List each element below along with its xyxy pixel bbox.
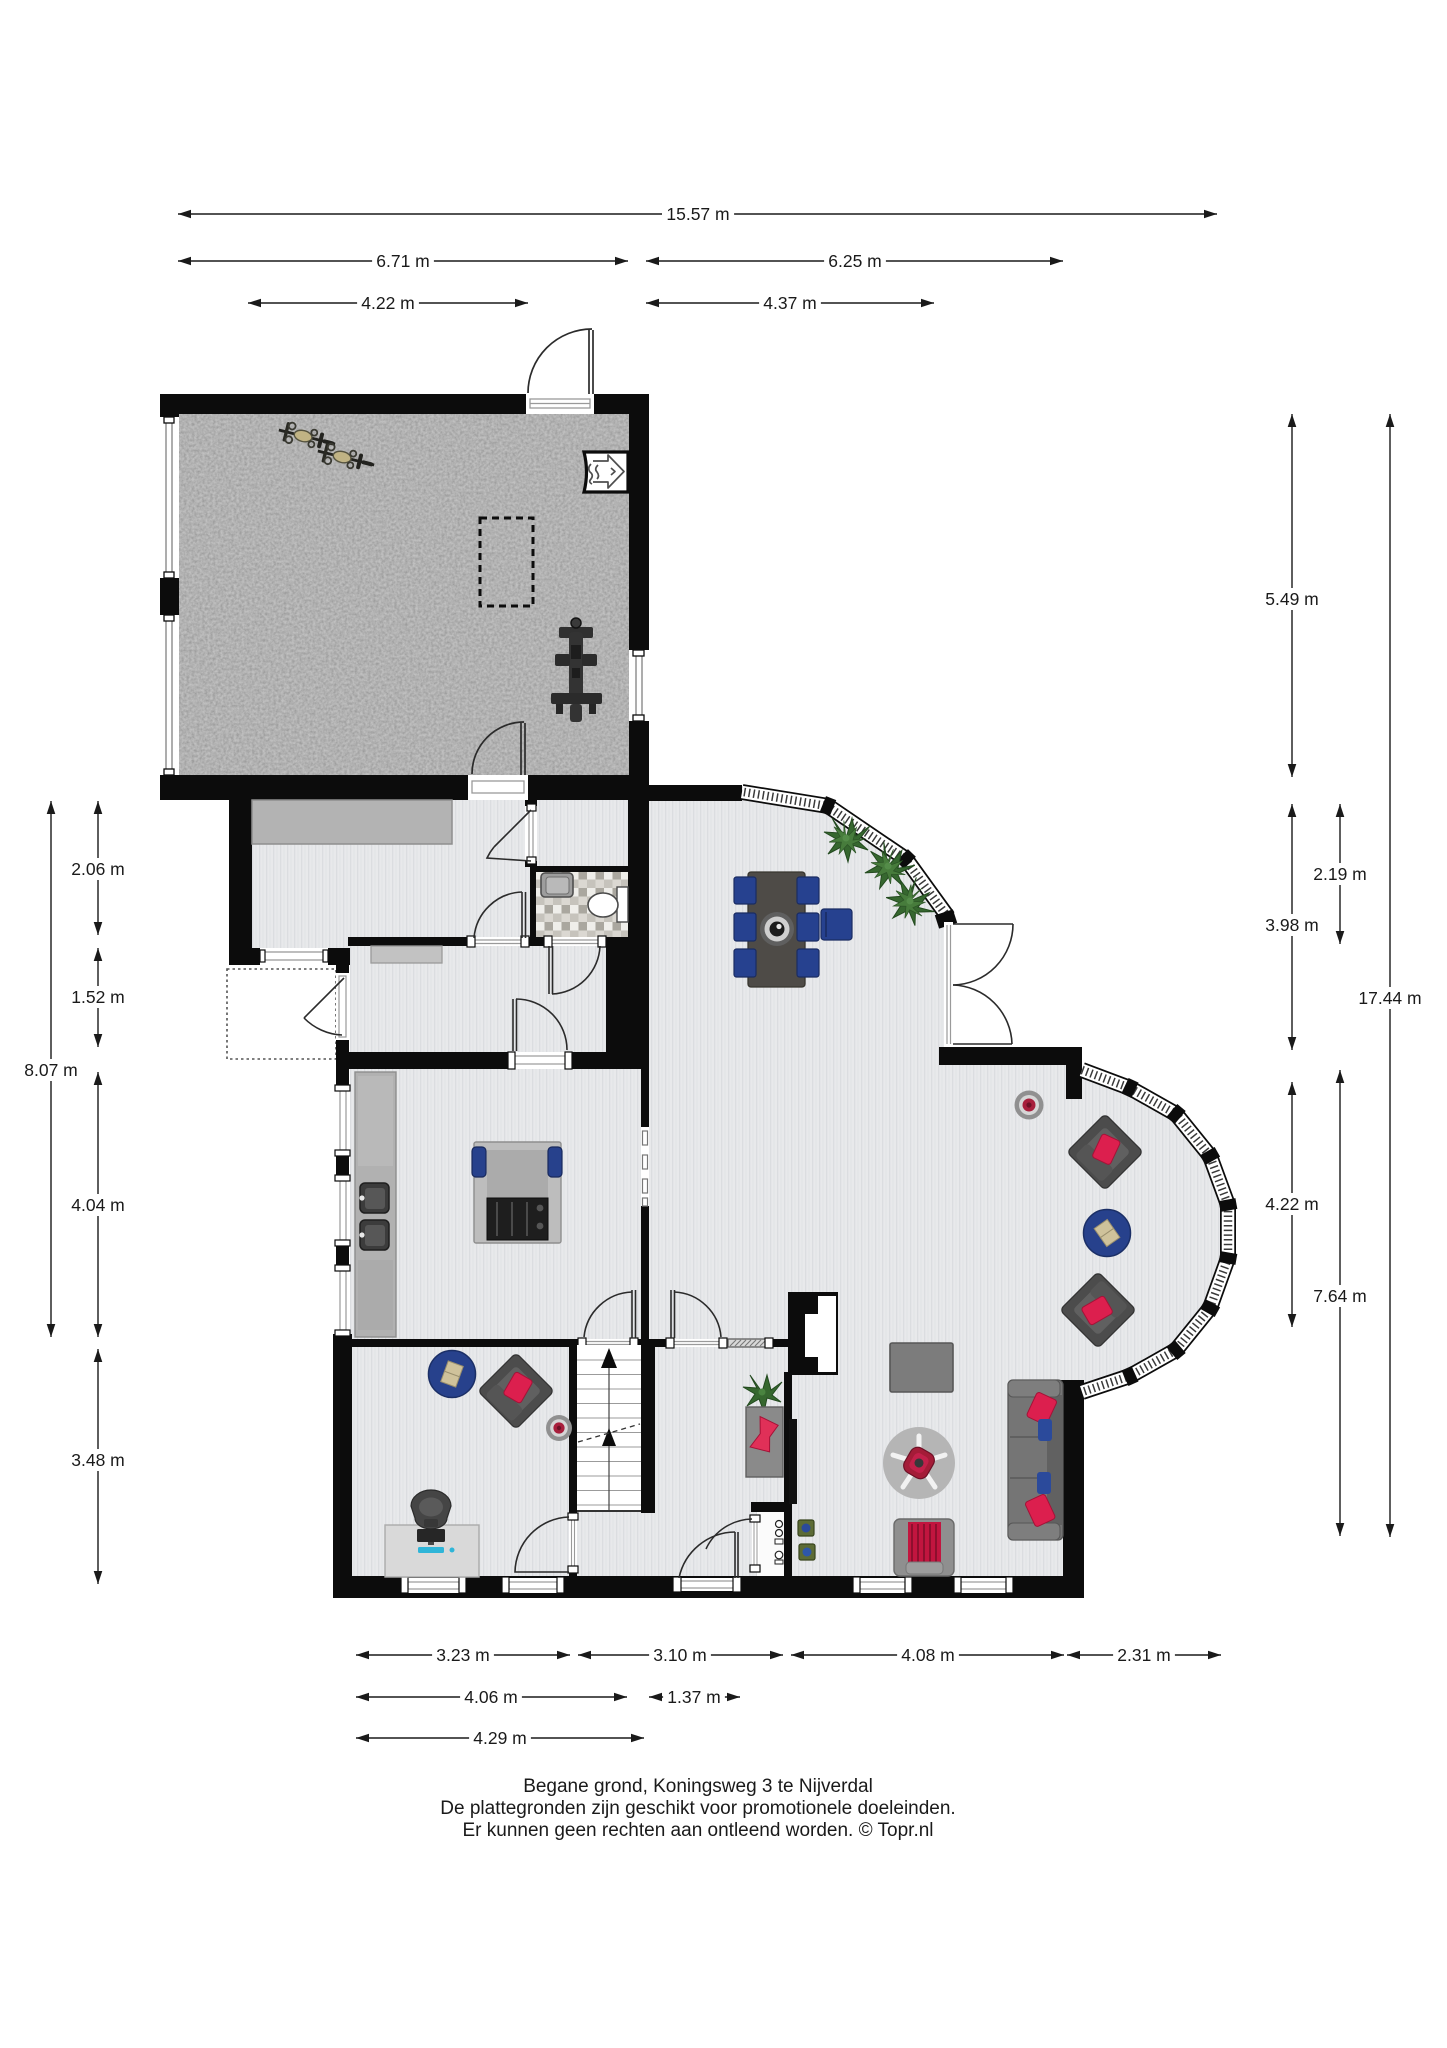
- svg-text:4.08 m: 4.08 m: [901, 1645, 955, 1665]
- svg-text:3.98 m: 3.98 m: [1265, 915, 1319, 935]
- svg-text:5.49 m: 5.49 m: [1265, 589, 1319, 609]
- svg-text:4.22 m: 4.22 m: [1265, 1194, 1319, 1214]
- svg-text:3.23 m: 3.23 m: [436, 1645, 490, 1665]
- svg-text:4.04 m: 4.04 m: [71, 1195, 125, 1215]
- svg-text:3.48 m: 3.48 m: [71, 1450, 125, 1470]
- svg-text:1.37 m: 1.37 m: [667, 1687, 721, 1707]
- svg-text:2.31 m: 2.31 m: [1117, 1645, 1171, 1665]
- svg-text:1.52 m: 1.52 m: [71, 987, 125, 1007]
- svg-text:3.10 m: 3.10 m: [653, 1645, 707, 1665]
- svg-text:Begane grond, Koningsweg 3 te: Begane grond, Koningsweg 3 te Nijverdal: [523, 1776, 873, 1797]
- svg-text:4.22 m: 4.22 m: [361, 293, 415, 313]
- svg-text:2.06 m: 2.06 m: [71, 859, 125, 879]
- svg-text:7.64 m: 7.64 m: [1313, 1286, 1367, 1306]
- svg-text:6.25 m: 6.25 m: [828, 251, 882, 271]
- svg-text:4.06 m: 4.06 m: [464, 1687, 518, 1707]
- svg-text:15.57 m: 15.57 m: [666, 204, 729, 224]
- svg-text:2.19 m: 2.19 m: [1313, 864, 1367, 884]
- svg-text:Er kunnen geen rechten aan ont: Er kunnen geen rechten aan ontleend word…: [462, 1820, 933, 1841]
- svg-text:6.71 m: 6.71 m: [376, 251, 430, 271]
- svg-text:17.44 m: 17.44 m: [1358, 988, 1421, 1008]
- svg-text:4.37 m: 4.37 m: [763, 293, 817, 313]
- svg-text:De plattegronden zijn geschikt: De plattegronden zijn geschikt voor prom…: [440, 1798, 955, 1819]
- svg-text:8.07 m: 8.07 m: [24, 1060, 78, 1080]
- svg-text:4.29 m: 4.29 m: [473, 1728, 527, 1748]
